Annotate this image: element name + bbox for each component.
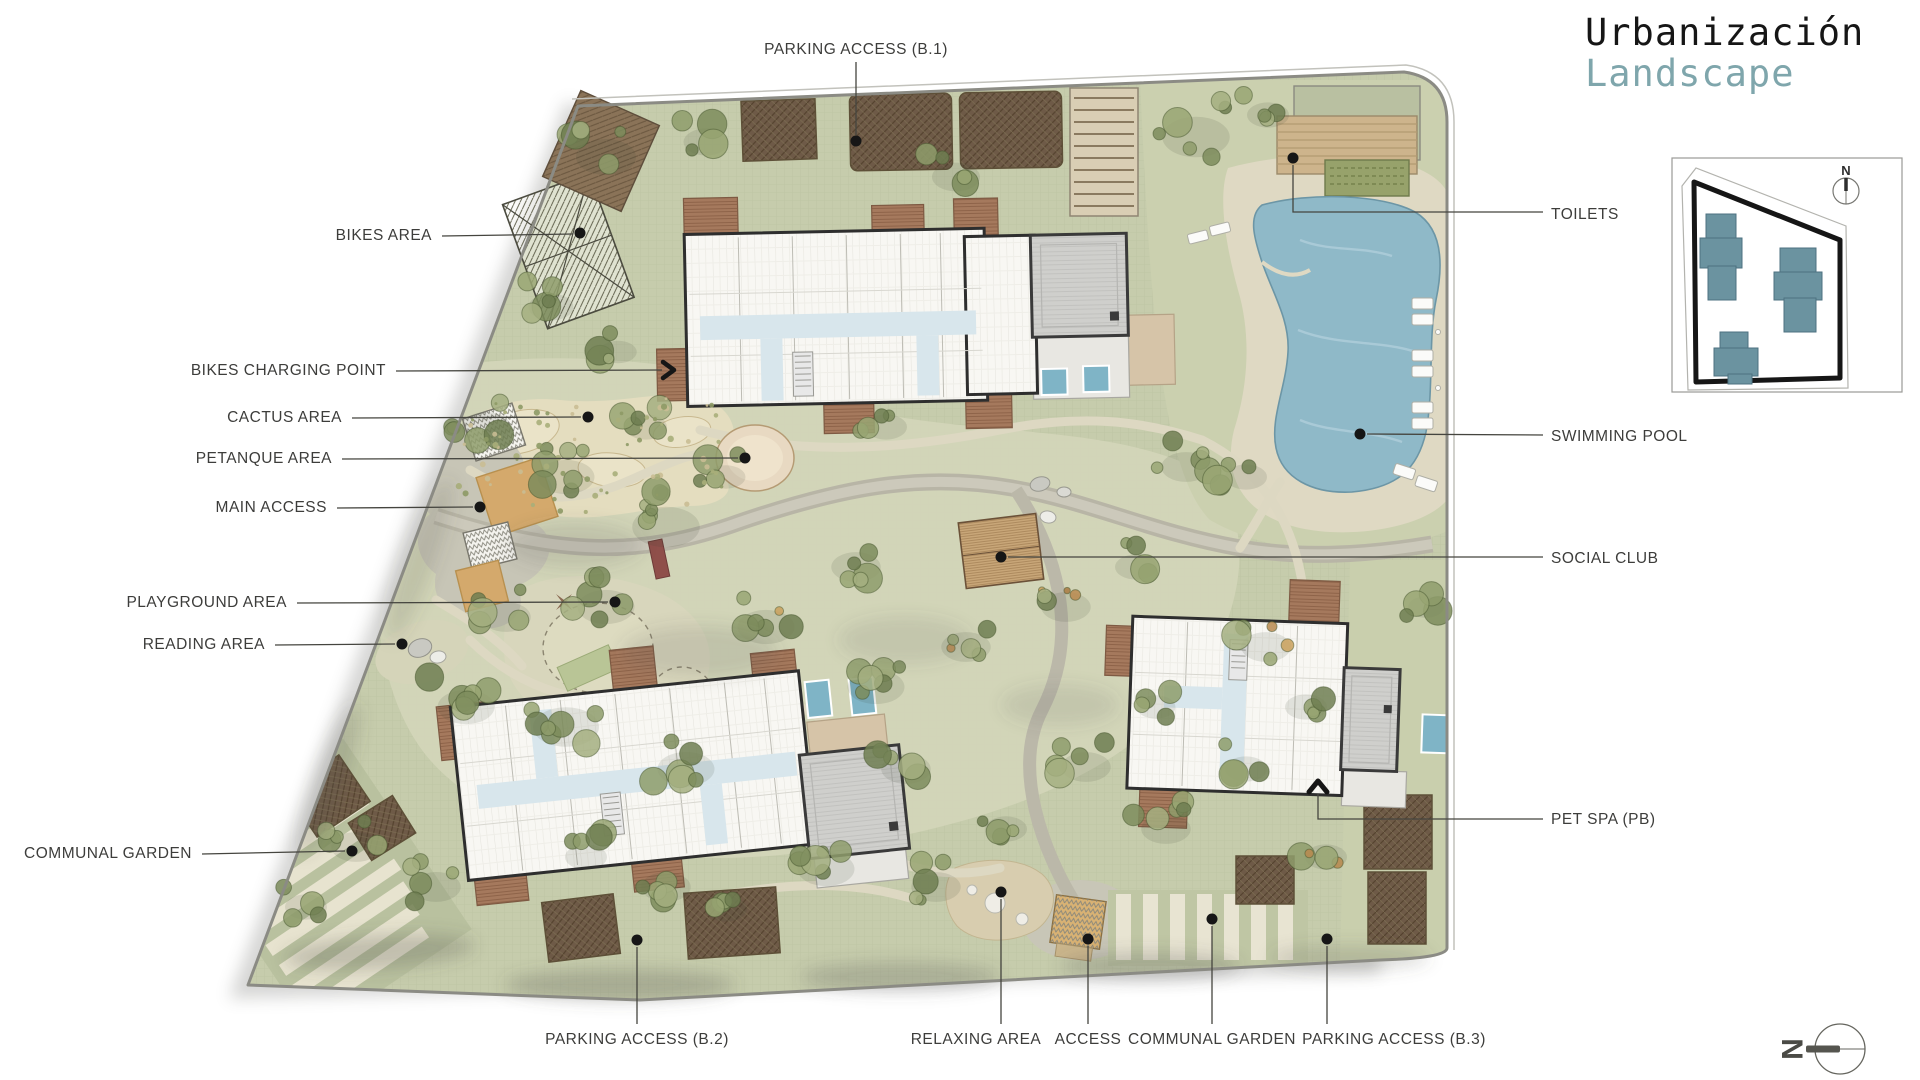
social-club-building: [958, 513, 1043, 588]
marker-dot-main-access: [475, 502, 486, 513]
page-title: Urbanización: [1585, 12, 1864, 53]
marker-dot-reading-area: [397, 639, 408, 650]
site-plan-map: N N: [0, 0, 1920, 1080]
marker-dot-parking-access-b3: [1322, 934, 1333, 945]
site-plan-canvas: N N PARKING ACCESS (B.1)BIKES AREABIKES …: [0, 0, 1920, 1080]
pergola-walkway: [1070, 88, 1138, 216]
marker-dot-toilets: [1288, 153, 1299, 164]
north-arrow-icon: N: [1777, 1024, 1866, 1074]
marker-dot-petanque-area: [740, 453, 751, 464]
marker-dot-relaxing-area: [996, 887, 1007, 898]
marker-dot-access: [1083, 934, 1094, 945]
key-plan-north-letter: N: [1841, 163, 1850, 178]
marker-dot-communal-garden-bottom: [1207, 914, 1218, 925]
marker-dot-playground-area: [610, 597, 621, 608]
compass-north-letter: N: [1777, 1038, 1810, 1060]
marker-dot-communal-garden-left: [347, 846, 358, 857]
title-block: Urbanización Landscape: [1585, 12, 1864, 95]
marker-dot-cactus-area: [583, 412, 594, 423]
marker-dot-swimming-pool: [1355, 429, 1366, 440]
key-plan-inset: N: [1672, 158, 1902, 392]
page-subtitle: Landscape: [1585, 53, 1864, 94]
marker-dot-bikes-area: [575, 228, 586, 239]
marker-dot-parking-access-b1: [851, 136, 862, 147]
marker-dot-social-club: [996, 552, 1007, 563]
marker-dot-parking-access-b2: [632, 935, 643, 946]
